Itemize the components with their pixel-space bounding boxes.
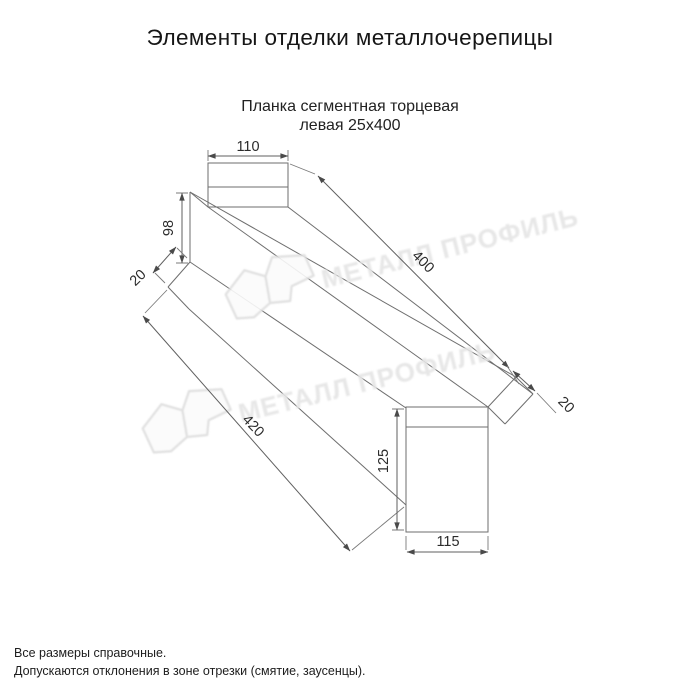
- dimension-value: 110: [236, 139, 259, 155]
- right-flap-edge-3: [505, 394, 533, 424]
- metall-profil-logo: [137, 382, 237, 456]
- footnote-line-1: Все размеры справочные.: [14, 644, 614, 662]
- left-flap-edge: [168, 287, 189, 309]
- footnote-line-2: Допускаются отклонения в зоне отрезки (с…: [14, 662, 614, 680]
- dimension-value: 125: [376, 449, 392, 473]
- technical-drawing: МЕТАЛЛ ПРОФИЛЬ МЕТАЛЛ ПРОФИЛЬ 110 98 20: [0, 0, 700, 700]
- dimension-115: 115: [406, 534, 488, 552]
- logo-fold-shape: [259, 248, 318, 305]
- watermark-text: МЕТАЛЛ ПРОФИЛЬ: [318, 201, 581, 294]
- top-cap-outline: [208, 163, 288, 207]
- dimension-value: 115: [436, 534, 459, 550]
- bottom-end-cap: [406, 407, 488, 532]
- right-flap-edge-2: [516, 377, 533, 394]
- dimension-20-left: 20: [127, 247, 187, 289]
- watermark-2: МЕТАЛЛ ПРОФИЛЬ: [137, 317, 500, 457]
- dimension-value: 20: [554, 394, 577, 417]
- dimension-value: 98: [161, 220, 177, 236]
- metall-profil-logo: [220, 248, 320, 322]
- top-end-cap: [208, 163, 288, 207]
- left-hem-flap: [168, 262, 190, 309]
- extension-line: [507, 366, 556, 413]
- drawing-page: Элементы отделки металлочерепицы Планка …: [0, 0, 700, 700]
- dimension-98: 98: [161, 193, 188, 263]
- bottom-cap-outline: [406, 407, 488, 532]
- dimension-20-right: 20: [507, 366, 577, 417]
- watermark-1: МЕТАЛЛ ПРОФИЛЬ: [220, 183, 583, 323]
- extension-line: [290, 164, 315, 174]
- dimension-value: 20: [127, 267, 150, 290]
- dimension-125: 125: [376, 409, 404, 530]
- right-flap-edge-1: [488, 377, 516, 407]
- dimension-line: [153, 247, 176, 273]
- left-cap-connector-edge: [190, 192, 208, 207]
- watermark-text: МЕТАЛЛ ПРОФИЛЬ: [235, 335, 498, 428]
- left-flap-fold: [168, 262, 190, 287]
- dimension-110: 110: [208, 139, 288, 161]
- footnotes: Все размеры справочные. Допускаются откл…: [14, 644, 614, 680]
- right-hem-flap: [488, 377, 533, 424]
- right-flap-fold: [488, 407, 505, 424]
